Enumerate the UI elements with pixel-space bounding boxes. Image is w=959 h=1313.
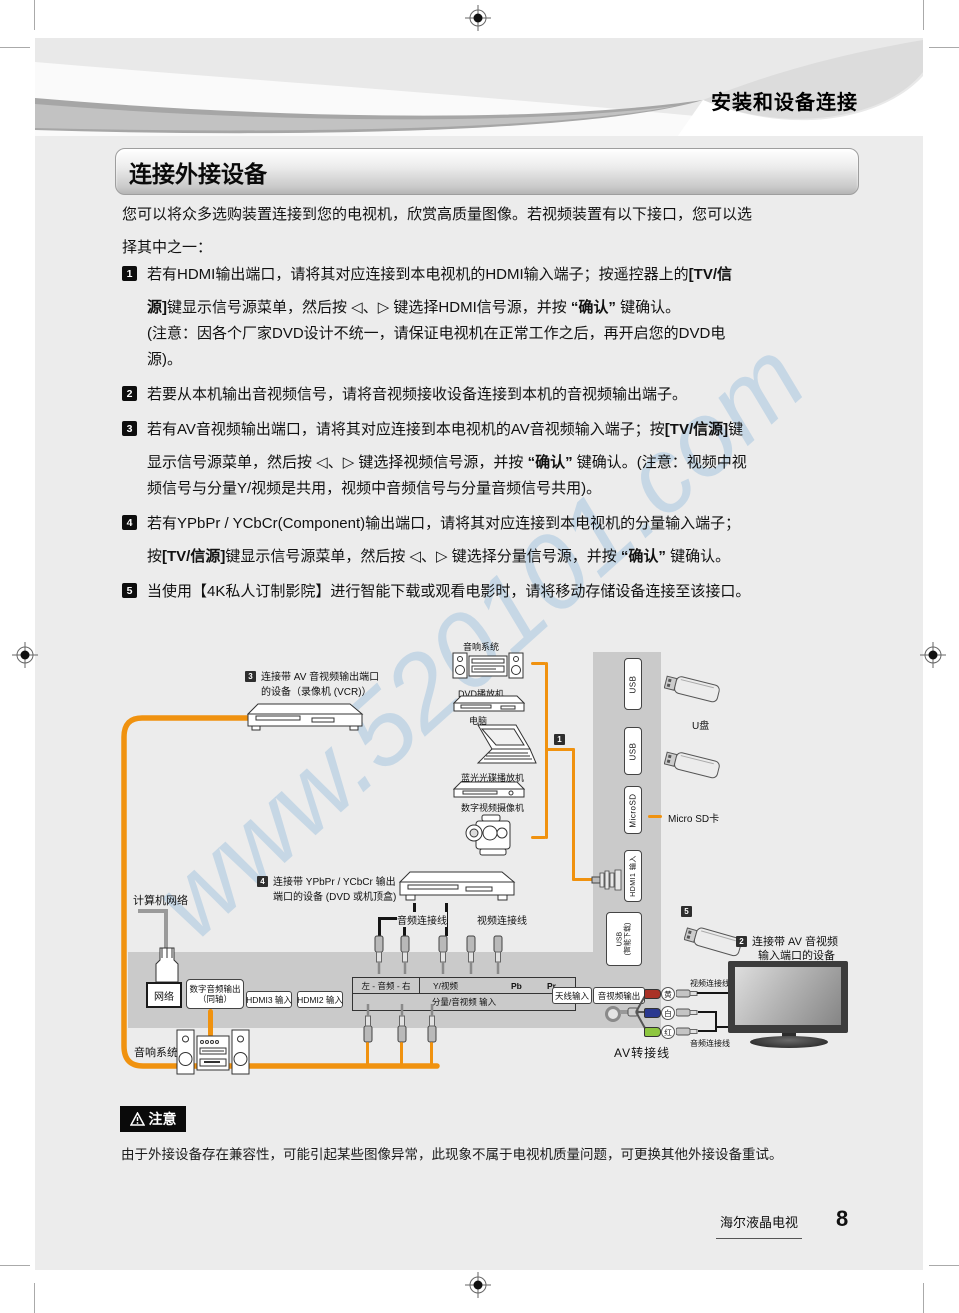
sd-pointer-line (648, 815, 662, 818)
rca-coupler-icon (676, 1026, 698, 1037)
audio-system-icon (176, 1026, 250, 1076)
white-circle-label: 白 (661, 1006, 675, 1020)
caution-text: 由于外接设备存在兼容性，可能引起某些图像异常，此现象不属于电视机质量问题，可更换… (121, 1143, 881, 1163)
callout-3-line2: 的设备（录像机 (VCR)） (261, 683, 372, 698)
computer-network-label: 计算机网络 (133, 892, 188, 908)
rca-plug-icon (373, 934, 385, 976)
warning-icon (130, 1112, 145, 1126)
network-port: 网络 (146, 982, 182, 1008)
laptop-icon (458, 723, 538, 773)
av-adapter-label: AV转接线 (614, 1044, 670, 1061)
hdmi-plug-icon (590, 869, 626, 891)
video-cable-label: 视频连接线 (477, 912, 527, 927)
rca-plug-icon (396, 1002, 408, 1044)
adapter-plug-green (644, 1027, 661, 1037)
rca-plug-icon (437, 934, 449, 976)
cable-stem (430, 1042, 433, 1068)
caution-badge: 注意 (120, 1106, 186, 1132)
pb-label: Pb (511, 981, 522, 991)
rca-plug-icon (362, 1002, 374, 1044)
callout-3-line1: 连接带 AV 音视频输出端口 (261, 668, 379, 683)
microsd-port: MicroSD (624, 786, 642, 834)
hdmi1-port: HDMI1 输入 (624, 850, 642, 902)
audio-line-join (715, 1011, 717, 1032)
callout-5-badge: 5 (681, 906, 692, 917)
usb-drive-icon (664, 744, 726, 788)
usb-port-1: USB (624, 658, 642, 710)
rca-plug-icon (426, 1002, 438, 1044)
callout-4-line2: 端口的设备 (DVD 或机顶盒) (273, 888, 396, 903)
cable-elbow (545, 748, 575, 751)
usb-download-port: USB(智能下载) (606, 912, 642, 966)
manual-page: www.520101.com 安装和设备连接 连接外接设备 您可以将众多选购装置… (0, 0, 959, 1313)
dvd-player-icon (453, 695, 525, 714)
rca-plug-icon (492, 934, 504, 976)
cable-stem (400, 1042, 403, 1068)
cable-stem (366, 1042, 369, 1068)
adapter-plug-red (644, 989, 661, 999)
dvd-stb-icon (398, 870, 516, 904)
rca-coupler-icon (676, 1007, 698, 1018)
yellow-circle-label: 黄 (661, 987, 675, 1001)
camcorder-icon (464, 811, 520, 859)
audio-system-icon (452, 650, 524, 680)
video-line-to-tv (697, 992, 728, 994)
component-input-strip: 左 - 音频 - 右 Y/视频 Pb Pr 分量/音视频 输入 (352, 977, 576, 1011)
bluray-player-icon (453, 780, 525, 800)
caution-label: 注意 (149, 1109, 177, 1129)
usb-drive-icon (664, 668, 726, 712)
audio-cable-tv-label: 音频连接线 (690, 1038, 730, 1049)
av-socket-icon (605, 1006, 621, 1022)
y-video-label: Y/视频 (433, 980, 458, 992)
rca-coupler-icon (676, 988, 698, 999)
component-av-input-label: 分量/音视频 输入 (353, 994, 575, 1010)
usb-drive-label: U盘 (692, 717, 709, 732)
rca-plug-icon (399, 934, 411, 976)
audio-lr-label: 左 - 音频 - 右 (353, 978, 420, 993)
cable-stub (531, 836, 546, 839)
hdmi3-port: HDMI3 输入 (246, 991, 292, 1008)
callout-2-badge: 2 (736, 936, 747, 947)
tv-screen (735, 967, 841, 1025)
antenna-input-port: 天线输入 (552, 987, 592, 1004)
callout-4-badge: 4 (257, 876, 268, 887)
vcr-icon (246, 702, 364, 734)
cable-stub (531, 662, 546, 665)
video-cable-tv-label: 视频连接线 (690, 978, 730, 989)
callout-3-badge: 3 (245, 671, 256, 682)
page-number: 8 (836, 1206, 848, 1232)
callout-4-line1: 连接带 YPbPr / YCbCr 输出 (273, 873, 396, 888)
callout-1-badge: 1 (554, 734, 565, 745)
rj45-connector-icon (154, 946, 180, 986)
audio-system-bottom-label: 音响系统 (134, 1044, 178, 1060)
micro-sd-label: Micro SD卡 (668, 810, 719, 825)
red-circle-label: 红 (661, 1025, 675, 1039)
network-cable (164, 909, 168, 949)
adapter-plug-blue (644, 1008, 661, 1018)
rca-plug-icon (465, 934, 477, 976)
cable-elbow (572, 748, 575, 881)
digital-audio-out-port: 数字音频输出（同轴） (186, 979, 244, 1009)
tv-stand (750, 1036, 828, 1048)
hdmi2-port: HDMI2 输入 (297, 991, 343, 1008)
usb-port-2: USB (624, 727, 642, 775)
tv-icon (728, 961, 848, 1033)
audio-line-to-tv (715, 1026, 728, 1028)
footer-brand: 海尔液晶电视 (716, 1212, 802, 1239)
audio-cable-label: 音频连接线 (397, 912, 447, 927)
